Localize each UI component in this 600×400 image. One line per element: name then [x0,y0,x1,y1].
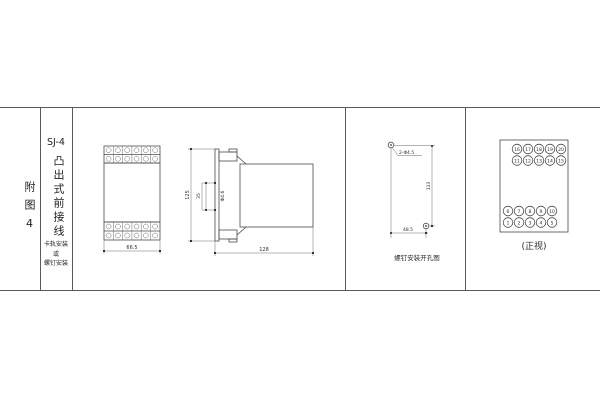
table-bottom-rule [0,290,600,291]
terminal-row-3: 6 7 8 9 10 [503,206,557,216]
drill-caption: 螺钉安装开孔图 [394,253,440,262]
side-view-drawing: 35 Φ4.6 125 128 [180,125,330,265]
model-label: SJ-4 [40,137,72,148]
table-top-rule [0,107,600,108]
svg-text:16: 16 [514,147,520,153]
svg-text:13: 13 [536,158,542,164]
svg-text:19: 19 [547,147,553,153]
svg-text:8: 8 [529,209,532,215]
table-divider-4 [465,107,466,290]
mount-note-line1: 卡轨安装 [40,240,72,250]
svg-text:17: 17 [525,147,531,153]
side-rail-dimension: 35 [196,193,202,199]
svg-text:3: 3 [529,220,532,226]
side-hole-label: Φ4.6 [220,191,226,202]
drawing-sheet: 附图4 SJ-4 凸出式前接线 卡轨安装 或 螺钉安装 [0,0,600,400]
svg-text:7: 7 [518,209,521,215]
svg-text:9: 9 [540,209,543,215]
mount-note-line3: 螺钉安装 [40,259,72,269]
svg-text:1: 1 [507,220,510,226]
table-divider-3 [345,107,346,290]
figure-label: 附图4 [21,181,37,237]
svg-text:10: 10 [549,209,555,215]
svg-text:20: 20 [558,147,564,153]
terminal-caption: (正视) [521,240,546,252]
svg-text:18: 18 [536,147,542,153]
terminal-row-4: 1 2 3 4 5 [503,218,557,228]
svg-text:12: 12 [525,158,531,164]
side-body [240,164,313,227]
front-body [104,163,160,222]
svg-text:11: 11 [514,158,520,164]
front-view-drawing: 66.5 [95,135,170,270]
svg-text:4: 4 [540,220,543,226]
front-width-dimension: 66.5 [126,245,137,251]
svg-text:2: 2 [518,220,521,226]
side-flange [215,149,219,241]
drill-holes-label: 2-Φ4.5 [399,150,414,156]
drill-width-dimension: 48.5 [403,227,413,233]
svg-text:6: 6 [507,209,510,215]
terminal-view-drawing: 16 17 18 19 20 11 12 13 14 15 6 7 8 9 10 [495,130,585,255]
side-depth-dimension: 128 [259,247,269,253]
side-height-dimension: 125 [185,190,191,200]
svg-text:14: 14 [547,158,553,164]
table-divider-2 [72,107,73,290]
svg-text:15: 15 [558,158,564,164]
wiring-type-label: 凸出式前接线 [50,155,66,239]
side-rail-clip [206,183,215,210]
mount-note-line2: 或 [40,250,72,260]
drill-diagram: 113 48.5 2-Φ4.5 螺钉安装开孔图 [370,130,465,275]
terminal-row-2: 11 12 13 14 15 [512,156,566,166]
drill-height-dimension: 113 [426,182,432,191]
mount-note: 卡轨安装 或 螺钉安装 [40,240,72,269]
terminal-row-1: 16 17 18 19 20 [512,144,566,154]
svg-text:5: 5 [551,220,554,226]
